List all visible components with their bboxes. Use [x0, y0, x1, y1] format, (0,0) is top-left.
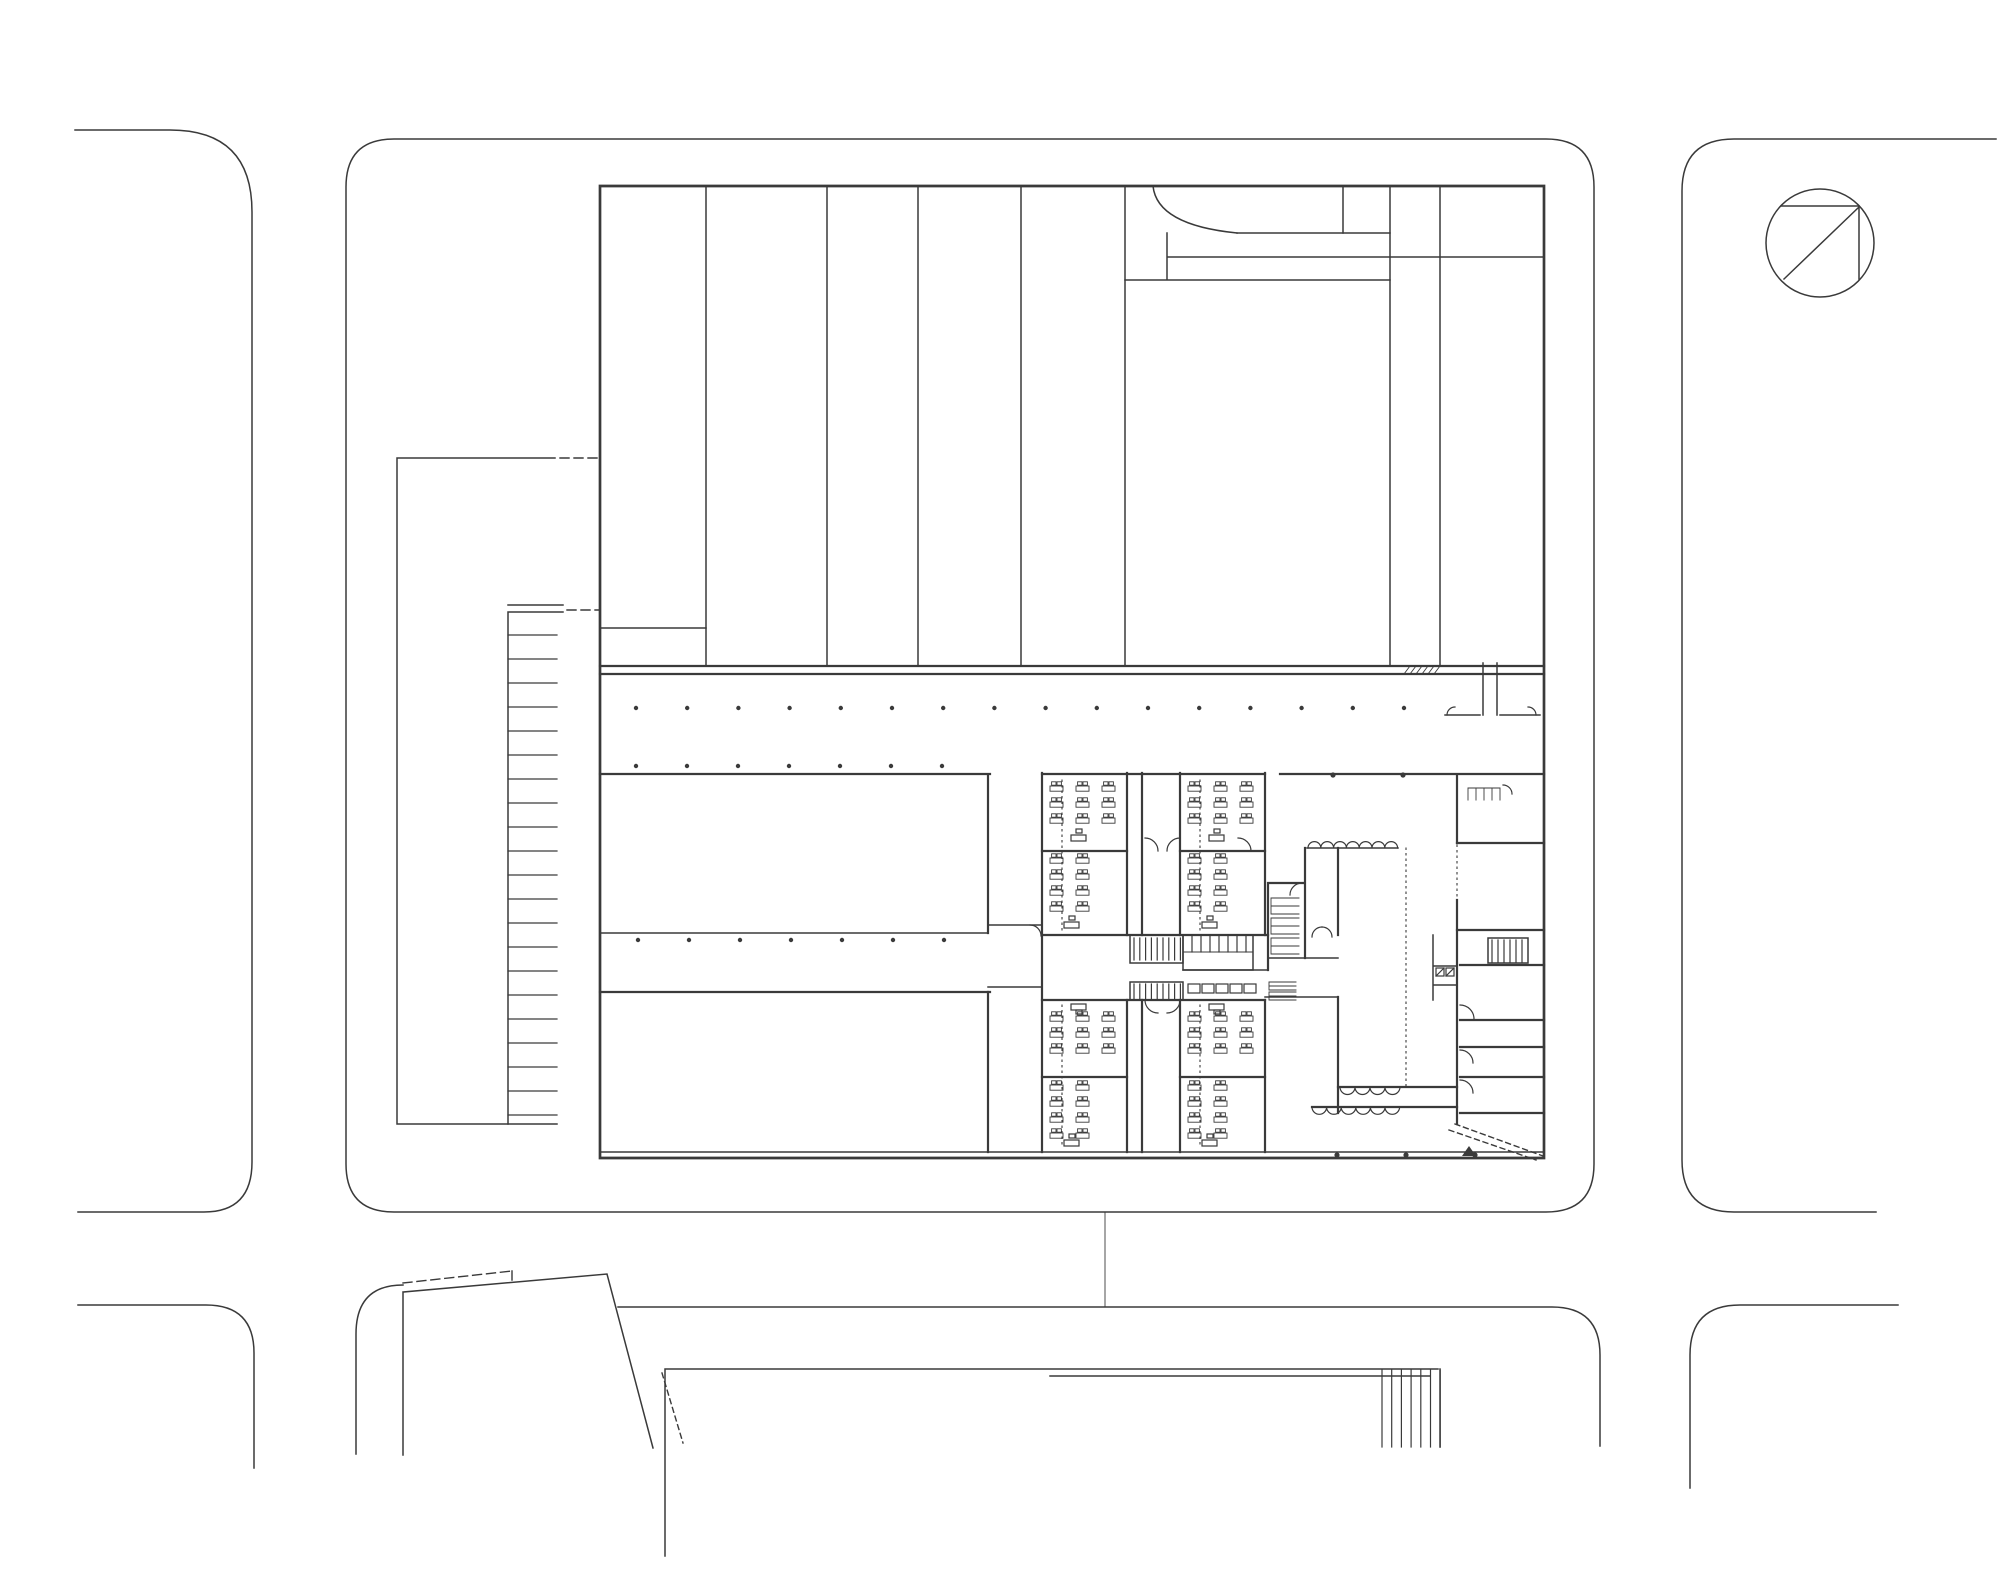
bookshelf-icons [1271, 898, 1299, 954]
south-annex-buildings [403, 1274, 1440, 1556]
classroom-desks [1050, 1081, 1089, 1138]
classroom-wing [1042, 773, 1268, 1152]
classroom-desks [1188, 1081, 1227, 1138]
central-hall [1183, 842, 1457, 1115]
street-network [75, 130, 1996, 1488]
stair-a-hatch [1134, 938, 1180, 960]
parking-court [397, 458, 600, 1124]
south-building-stair [1382, 1370, 1440, 1447]
block-topleft-boundary [75, 130, 252, 1212]
block-south-west-corner [356, 1285, 403, 1454]
block-bottomleft-boundary [78, 1305, 254, 1468]
toilet-block [1183, 935, 1253, 970]
column-dots-row-1 [634, 706, 1406, 710]
shelf-icons [1468, 788, 1500, 800]
block-main-boundary [346, 139, 1594, 1212]
hatched-wall-segment [1404, 666, 1440, 674]
service-strip [1130, 935, 1256, 1000]
north-hall-south-wall [600, 666, 1544, 674]
west-halls [600, 774, 1544, 1152]
parking-court-wall [397, 458, 557, 1124]
parking-stalls [508, 635, 557, 1115]
wall-desk-row [1188, 984, 1256, 993]
classroom-desks [1050, 782, 1115, 823]
toilet-stalls [1192, 935, 1246, 952]
stair-b-hatch [1492, 940, 1522, 962]
building-outline [600, 186, 1544, 1158]
block-right-boundary [1682, 139, 1996, 1212]
wc-fixtures [1436, 968, 1454, 976]
parking-court-dashed-gap [560, 458, 600, 610]
school-building [600, 186, 1544, 1160]
column-dots-row-3 [636, 938, 946, 942]
east-wing [1433, 663, 1544, 1160]
north-hall-bays [600, 186, 1544, 674]
classroom-desks [1188, 854, 1227, 911]
classroom-desks [1050, 854, 1089, 911]
site-plan-drawing [0, 0, 2000, 1571]
classroom-desks [1188, 782, 1253, 823]
column-dots-row-2 [634, 764, 944, 768]
north-arrow-icon [1766, 189, 1874, 297]
entrance-marker [1462, 1146, 1476, 1156]
block-bottomright-boundary [1690, 1305, 1898, 1488]
locker-hatch [1134, 984, 1180, 999]
scalloped-seating-row [1308, 842, 1398, 848]
tilted-building [403, 1274, 653, 1455]
curved-stage-wall [1153, 186, 1237, 233]
classroom-desks [1050, 1012, 1115, 1053]
site-plan-canvas [0, 0, 2000, 1571]
south-building-outline [665, 1369, 1440, 1556]
south-block-dashed-edge [403, 1271, 512, 1283]
door-arcs [1030, 707, 1536, 1093]
classroom-desks [1188, 1012, 1253, 1053]
scalloped-seating-row [1340, 1087, 1400, 1095]
